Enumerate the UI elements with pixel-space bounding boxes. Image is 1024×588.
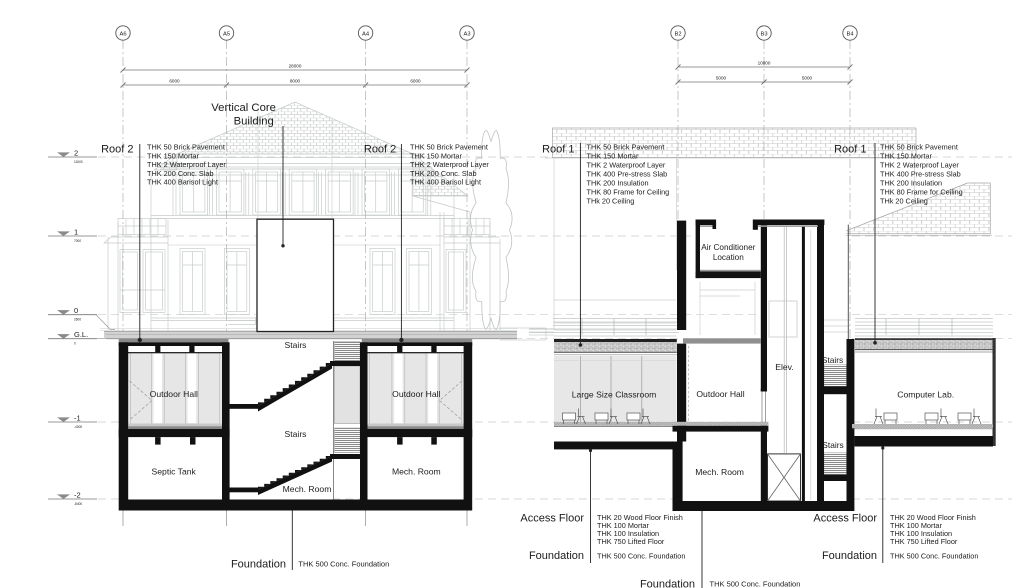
svg-text:1: 1 xyxy=(74,228,78,237)
svg-text:11600: 11600 xyxy=(74,160,83,164)
svg-text:Mech. Room: Mech. Room xyxy=(695,467,744,477)
svg-text:THK 400 Pre-stress Slab: THK 400 Pre-stress Slab xyxy=(587,170,668,179)
svg-text:THK 150 Mortar: THK 150 Mortar xyxy=(147,151,199,160)
svg-text:-4000: -4000 xyxy=(74,425,82,429)
svg-text:THK 2 Waterproof Layer: THK 2 Waterproof Layer xyxy=(880,161,959,170)
svg-text:THK 50 Brick Pavement: THK 50 Brick Pavement xyxy=(587,143,665,152)
svg-text:Foundation: Foundation xyxy=(231,559,286,571)
svg-text:Stairs: Stairs xyxy=(285,340,307,350)
svg-text:THK 150 Mortar: THK 150 Mortar xyxy=(410,151,462,160)
svg-text:Stairs: Stairs xyxy=(822,440,843,450)
svg-text:Access Floor: Access Floor xyxy=(520,513,584,525)
svg-text:THK 50 Brick Pavement: THK 50 Brick Pavement xyxy=(410,143,488,152)
svg-text:10000: 10000 xyxy=(758,61,771,66)
svg-text:Computer Lab.: Computer Lab. xyxy=(897,389,954,399)
svg-text:Foundation: Foundation xyxy=(822,550,877,562)
svg-text:Access Floor: Access Floor xyxy=(813,513,877,525)
svg-text:Stairs: Stairs xyxy=(285,429,307,439)
svg-text:THK 400 Barisol Light: THK 400 Barisol Light xyxy=(410,178,481,187)
svg-text:2: 2 xyxy=(74,149,78,158)
svg-text:A3: A3 xyxy=(463,32,470,38)
svg-text:THK 50 Brick Pavement: THK 50 Brick Pavement xyxy=(147,143,225,152)
svg-text:0: 0 xyxy=(74,306,78,315)
svg-text:THK 200 Conc. Slab: THK 200 Conc. Slab xyxy=(147,169,214,178)
svg-text:8000: 8000 xyxy=(290,79,301,84)
svg-text:A6: A6 xyxy=(119,32,126,38)
svg-text:Vertical Core: Vertical Core xyxy=(211,102,276,114)
svg-text:28000: 28000 xyxy=(289,64,302,69)
svg-text:Mech. Room: Mech. Room xyxy=(392,466,441,476)
svg-text:THk 20 Ceiling: THk 20 Ceiling xyxy=(587,197,635,206)
svg-text:A5: A5 xyxy=(223,32,230,38)
svg-text:6000: 6000 xyxy=(410,79,421,84)
svg-text:7000: 7000 xyxy=(74,239,81,243)
svg-text:5000: 5000 xyxy=(716,76,727,81)
svg-text:Stairs: Stairs xyxy=(822,355,843,365)
svg-text:THK 2 Waterproof Layer: THK 2 Waterproof Layer xyxy=(410,160,489,169)
svg-text:THK 750 Lifted Floor: THK 750 Lifted Floor xyxy=(890,537,958,546)
svg-text:THK 200 Conc. Slab: THK 200 Conc. Slab xyxy=(410,169,477,178)
svg-text:THK 500 Conc. Foundation: THK 500 Conc. Foundation xyxy=(597,552,685,561)
svg-text:-2: -2 xyxy=(74,491,81,500)
svg-text:6000: 6000 xyxy=(169,79,180,84)
svg-text:THK 80 Frame for Ceiling: THK 80 Frame for Ceiling xyxy=(587,188,670,197)
svg-text:Roof 1: Roof 1 xyxy=(542,144,574,156)
svg-text:THK 80 Frame for Ceiling: THK 80 Frame for Ceiling xyxy=(880,188,963,197)
svg-text:THK 200 Insulation: THK 200 Insulation xyxy=(880,179,942,188)
svg-text:THK 400 Pre-stress Slab: THK 400 Pre-stress Slab xyxy=(880,170,961,179)
svg-text:Outdoor Hall: Outdoor Hall xyxy=(150,389,198,399)
svg-text:Foundation: Foundation xyxy=(640,579,695,588)
svg-text:THk 20 Ceiling: THk 20 Ceiling xyxy=(880,197,928,206)
svg-text:THK 400 Barisol Light: THK 400 Barisol Light xyxy=(147,178,218,187)
svg-text:THK 750 Lifted Floor: THK 750 Lifted Floor xyxy=(597,537,665,546)
svg-text:THK 500 Conc. Foundation: THK 500 Conc. Foundation xyxy=(710,580,801,588)
svg-text:THK 150 Mortar: THK 150 Mortar xyxy=(880,152,932,161)
svg-text:THK 500 Conc. Foundation: THK 500 Conc. Foundation xyxy=(298,560,389,569)
svg-text:-8400: -8400 xyxy=(74,502,82,506)
svg-text:Roof 2: Roof 2 xyxy=(364,144,396,156)
svg-text:Septic Tank: Septic Tank xyxy=(152,466,197,476)
svg-text:-1: -1 xyxy=(74,414,81,423)
svg-text:THK 200 Insulation: THK 200 Insulation xyxy=(587,179,649,188)
svg-text:THK 150 Mortar: THK 150 Mortar xyxy=(587,152,639,161)
svg-text:A4: A4 xyxy=(362,32,370,38)
svg-text:THK 50 Brick Pavement: THK 50 Brick Pavement xyxy=(880,143,958,152)
svg-text:2600: 2600 xyxy=(74,318,81,322)
svg-text:Roof 2: Roof 2 xyxy=(101,144,133,156)
svg-text:B4: B4 xyxy=(846,32,854,38)
svg-text:Building: Building xyxy=(234,116,274,128)
svg-text:THK 2 Waterproof Layer: THK 2 Waterproof Layer xyxy=(587,161,666,170)
svg-text:Large Size Classroom: Large Size Classroom xyxy=(572,389,657,399)
svg-text:B2: B2 xyxy=(674,32,681,38)
svg-text:Location: Location xyxy=(713,253,744,262)
svg-text:Air Conditioner: Air Conditioner xyxy=(701,243,755,252)
svg-text:Outdoor Hall: Outdoor Hall xyxy=(696,389,744,399)
svg-text:Roof 1: Roof 1 xyxy=(834,144,866,156)
svg-text:5000: 5000 xyxy=(802,76,813,81)
svg-text:THK 500 Conc. Foundation: THK 500 Conc. Foundation xyxy=(890,552,978,561)
svg-text:THK 2 Waterproof Layer: THK 2 Waterproof Layer xyxy=(147,160,226,169)
svg-text:B3: B3 xyxy=(760,32,767,38)
svg-text:Outdoor Hall: Outdoor Hall xyxy=(392,389,440,399)
svg-text:0: 0 xyxy=(74,342,76,346)
svg-text:Foundation: Foundation xyxy=(529,550,584,562)
svg-text:G.L.: G.L. xyxy=(74,330,88,339)
svg-text:Elev.: Elev. xyxy=(775,362,793,372)
svg-text:Mech. Room: Mech. Room xyxy=(283,484,332,494)
